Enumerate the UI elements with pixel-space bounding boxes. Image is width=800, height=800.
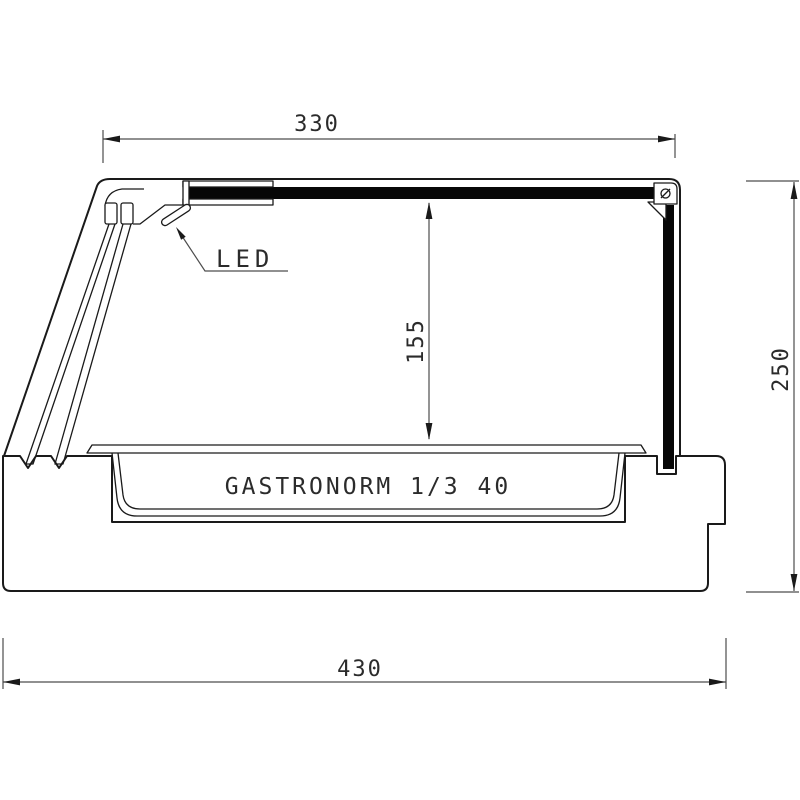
canopy-outline [4,179,680,456]
dim-inner-height: 155 [404,202,432,440]
rear-glass-panel [663,205,674,469]
led-leader-arrow-icon [176,227,186,240]
dim-overall-height-value: 250 [769,346,794,392]
dim-inner-height-value: 155 [404,318,429,364]
dim-overall-height: 250 [746,181,799,592]
led-callout: LED [176,227,288,273]
dim-top-width: 330 [103,112,675,163]
gastronorm-pan: GASTRONORM 1/3 40 [87,445,646,516]
top-glass-panel [183,181,654,205]
led-label: LED [216,245,274,273]
pane-mount-tab [121,203,133,224]
display-case-cross-section-drawing: GASTRONORM 1/3 40 LED 330 [0,0,800,800]
dim-overall-depth-value: 430 [337,657,383,682]
pane-mount-tab [105,203,117,224]
pan-lid-flange [87,445,646,453]
pan-label: GASTRONORM 1/3 40 [225,474,511,500]
led-strip [160,203,191,227]
dim-overall-depth: 430 [3,638,726,689]
bracket-gusset [648,202,666,220]
dim-top-width-value: 330 [294,112,340,137]
